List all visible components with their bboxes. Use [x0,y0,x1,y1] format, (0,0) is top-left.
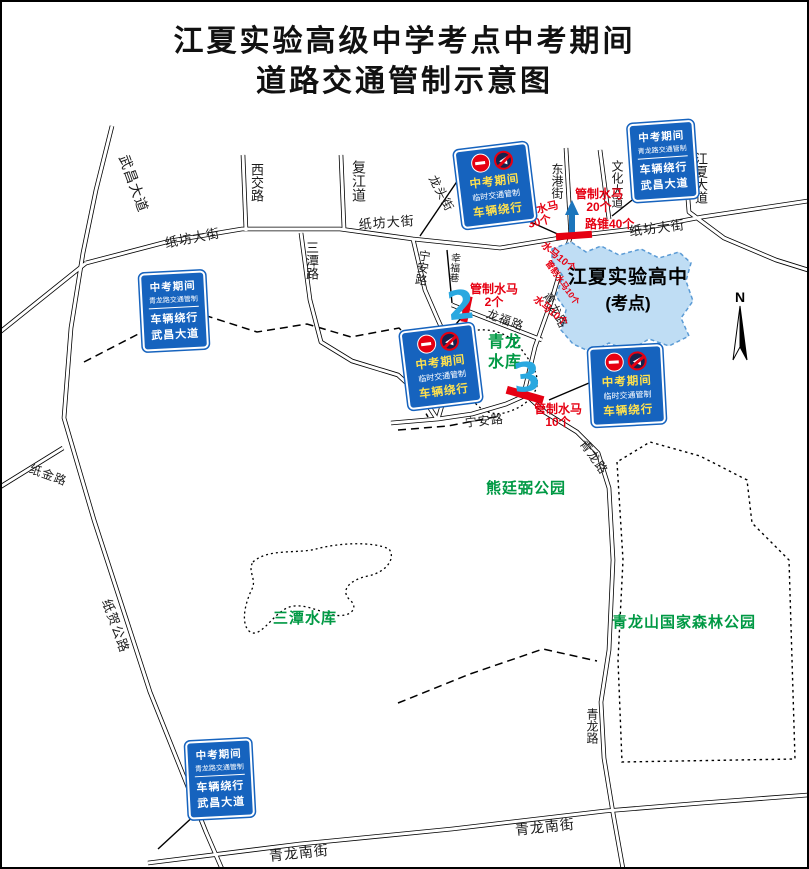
no-entry-icon [470,152,491,173]
sign-control-text: 青龙路交通管制 [145,294,201,307]
road-label-zhifang-street-m: 纸坊大街 [358,210,415,233]
compass-needle-icon [733,306,747,360]
road-label-xingfu-lane: 幸福巷 [446,252,459,283]
note-barrier-10: 管制水马 10个 [534,403,582,430]
sign-icon-row [593,350,658,372]
road-label-fujiang-road: 复江道 [352,160,366,202]
road-label-xijiao-road: 西交路 [250,163,263,202]
sign-period-text: 中考期间 [190,746,247,764]
sign-via-text: 武昌大道 [147,325,204,344]
map-title-line2: 道路交通管制示意图 [0,62,809,102]
traffic-sign-detour-bottomleft: 中考期间 青龙路交通管制 车辆绕行 武昌大道 [185,738,255,819]
note-barrier-2: 管制水马 2个 [470,283,518,310]
sign-via-text: 武昌大道 [636,174,693,194]
note-barrier-10-count: 10个 [534,416,582,429]
traffic-sign-temporary-right: 中考期间 临时交通管制 车辆绕行 [588,344,666,427]
barrier-mark-1 [556,231,592,240]
no-horn-icon [627,351,647,371]
road-centers [0,126,808,869]
traffic-sign-detour-left: 中考期间 青龙路交通管制 车辆绕行 武昌大道 [139,270,209,351]
no-entry-icon [604,352,624,372]
note-cones-40: 路锥40个 [585,218,634,231]
sign-detour-text: 车辆绕行 [596,400,661,419]
map-title-line1: 江夏实验高级中学考点中考期间 [0,22,809,62]
area-label-santan-reservoir: 三潭水库 [273,607,337,628]
no-entry-icon [416,333,437,354]
road-label-santan-road: 三潭路 [305,241,318,280]
sign-control-text: 青龙路交通管制 [191,762,247,775]
school-name: 江夏实验高中 [562,262,694,289]
school-exam-site-label: 江夏实验高中 (考点) [562,262,694,314]
no-horn-icon [439,331,460,352]
map-title: 江夏实验高级中学考点中考期间 道路交通管制示意图 [0,22,809,101]
area-label-xiongtingbi-park: 熊廷弼公园 [486,477,566,498]
control-point-3: 3 [511,357,543,400]
leader-line-4 [549,383,589,400]
sign-period-text: 中考期间 [594,371,659,390]
forest-park-boundary [617,442,795,762]
no-horn-icon [493,150,514,171]
school-subtitle: (考点) [562,289,694,314]
sign-via-text: 武昌大道 [193,793,250,812]
compass-north-label: N [728,289,752,305]
control-point-2: 2 [445,285,477,328]
traffic-sign-temporary-mid: 中考期间 临时交通管制 车辆绕行 [399,323,482,410]
traffic-control-map: 江夏实验高级中学考点中考期间 道路交通管制示意图 武昌大道 西交路 复江道 龙头… [0,0,809,869]
sign-period-text: 中考期间 [144,278,201,296]
note-barrier-20-count: 20个 [575,201,623,214]
note-cones-40-text: 路锥40个 [585,218,634,231]
note-barrier-2-count: 2个 [470,296,518,309]
traffic-sign-detour-topright: 中考期间 青龙路交通管制 车辆绕行 武昌大道 [627,120,698,202]
area-label-qinglongshan-park: 青龙山国家森林公园 [612,611,756,632]
park-boundary-south [398,649,597,703]
traffic-sign-temporary-top: 中考期间 临时交通管制 车辆绕行 [453,142,536,229]
road-label-donggang-street: 东港街 [551,163,563,199]
note-barrier-20: 管制水马 20个 [575,188,623,215]
road-label-qinglong-road-s: 青龙路 [586,708,598,744]
